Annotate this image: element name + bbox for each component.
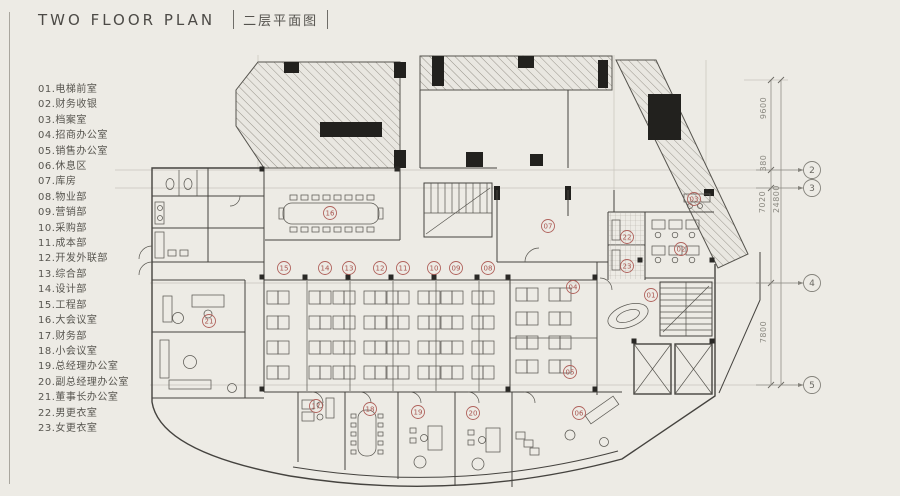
room-marker-16: 16	[324, 207, 337, 220]
svg-text:18: 18	[366, 406, 375, 414]
dimension-7020: 7020	[758, 191, 767, 213]
room-marker-18: 18	[364, 403, 377, 416]
svg-text:08: 08	[484, 265, 493, 273]
svg-text:15: 15	[280, 265, 289, 273]
bottom-offices-furniture	[302, 396, 619, 470]
room-marker-17: 17	[310, 400, 323, 413]
svg-text:4: 4	[809, 279, 815, 289]
svg-text:20: 20	[469, 410, 478, 418]
room-marker-15: 15	[278, 262, 291, 275]
svg-text:22: 22	[623, 234, 632, 242]
room04-desks	[516, 288, 571, 373]
room-marker-08: 08	[482, 262, 495, 275]
svg-text:17: 17	[312, 403, 321, 411]
exterior-walls	[139, 168, 760, 486]
room-marker-06: 06	[573, 407, 586, 420]
interior-walls	[152, 90, 714, 487]
svg-text:16: 16	[326, 210, 335, 218]
dimension-380: 380	[759, 155, 768, 172]
svg-text:14: 14	[321, 265, 330, 273]
svg-text:10: 10	[430, 265, 439, 273]
svg-text:11: 11	[399, 265, 408, 273]
svg-text:01: 01	[647, 292, 656, 300]
svg-text:05: 05	[566, 369, 575, 377]
grid-bubble-5: 5	[756, 377, 821, 394]
dimension-lines	[768, 77, 784, 388]
room-marker-13: 13	[343, 262, 356, 275]
svg-text:21: 21	[205, 318, 214, 326]
left-rooms-furniture	[155, 170, 237, 393]
floor-plan-sheet: TWO FLOOR PLAN 二层平面图 01.电梯前室02.财务收银03.档案…	[0, 0, 900, 496]
room-marker-12: 12	[374, 262, 387, 275]
room-marker-07: 07	[542, 220, 555, 233]
dimension-24800: 24800	[772, 185, 781, 213]
svg-text:23: 23	[623, 263, 632, 271]
svg-text:13: 13	[345, 265, 354, 273]
dimension-7800: 7800	[759, 321, 768, 343]
room-marker-14: 14	[319, 262, 332, 275]
svg-text:06: 06	[575, 410, 584, 418]
room-marker-19: 19	[412, 406, 425, 419]
dimension-labels: 96003807020780024800	[758, 97, 781, 343]
svg-text:2: 2	[809, 166, 815, 176]
room-marker-11: 11	[397, 262, 410, 275]
dimension-9600: 9600	[759, 97, 768, 119]
room-marker-09: 09	[450, 262, 463, 275]
room-marker-21: 21	[203, 315, 216, 328]
svg-text:02: 02	[677, 246, 686, 254]
room-marker-05: 05	[564, 366, 577, 379]
grid-bubble-4: 4	[756, 275, 821, 292]
svg-text:03: 03	[690, 196, 699, 204]
room-marker-10: 10	[428, 262, 441, 275]
room-marker-02: 02	[675, 243, 688, 256]
svg-text:12: 12	[376, 265, 385, 273]
svg-text:3: 3	[809, 184, 815, 194]
floor-plan-drawing: 1607032223020104051514131211100908211718…	[0, 0, 900, 496]
svg-text:09: 09	[452, 265, 461, 273]
svg-text:04: 04	[569, 284, 578, 292]
open-office-desks	[267, 291, 494, 379]
svg-text:19: 19	[414, 409, 423, 417]
svg-text:07: 07	[544, 223, 553, 231]
room-marker-04: 04	[567, 281, 580, 294]
room-marker-20: 20	[467, 407, 480, 420]
svg-text:5: 5	[809, 381, 815, 391]
room-marker-01: 01	[645, 289, 658, 302]
